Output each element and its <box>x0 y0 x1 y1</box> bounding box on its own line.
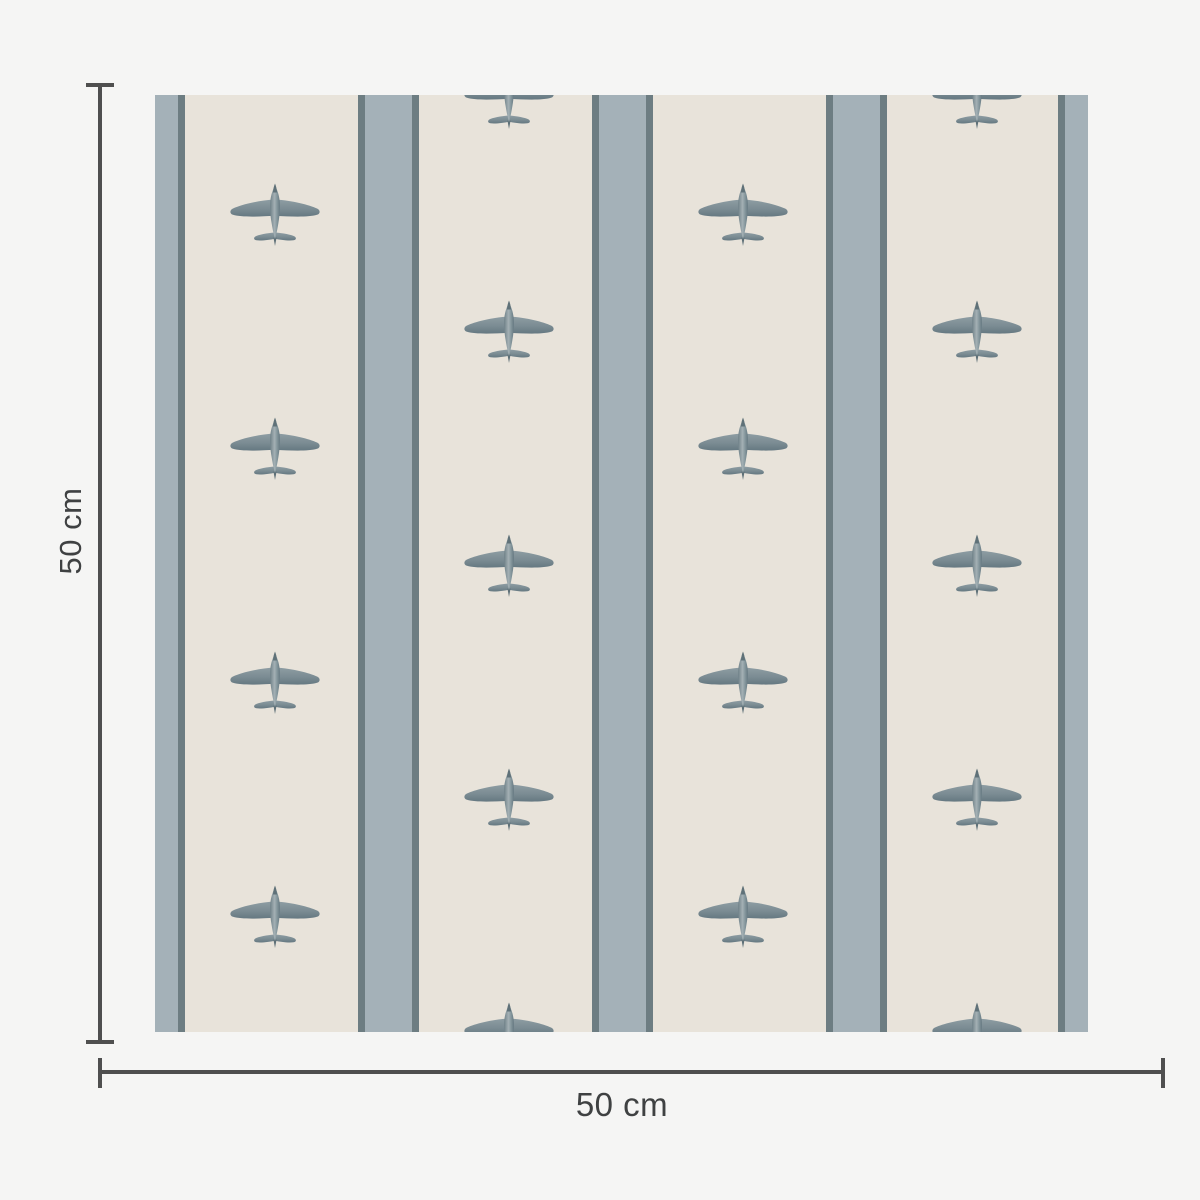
airplane-motif-icon <box>461 1002 557 1032</box>
airplane-motif-icon <box>227 417 323 481</box>
airplane-motif-icon <box>227 183 323 247</box>
airplane-motif-icon <box>227 651 323 715</box>
stripe-light <box>599 95 646 1032</box>
stripe-dark <box>178 95 185 1032</box>
airplane-motif-icon <box>461 534 557 598</box>
airplane-motif-icon <box>695 651 791 715</box>
stripe-dark <box>358 95 365 1032</box>
airplane-motif-icon <box>695 417 791 481</box>
stripe-dark <box>646 95 653 1032</box>
height-dimension-tick-bottom <box>86 1040 114 1044</box>
width-dimension-line <box>100 1070 1163 1074</box>
height-dimension-line <box>98 85 102 1042</box>
airplane-motif-icon <box>695 885 791 949</box>
airplane-motif-icon <box>929 1002 1025 1032</box>
airplane-motif-icon <box>461 300 557 364</box>
airplane-motif-icon <box>227 885 323 949</box>
pattern-swatch <box>155 95 1088 1032</box>
height-dimension-tick-top <box>86 83 114 87</box>
width-dimension-tick-left <box>98 1058 102 1088</box>
airplane-motif-icon <box>929 95 1025 130</box>
airplane-motif-icon <box>929 768 1025 832</box>
stripe-light <box>1065 95 1088 1032</box>
airplane-motif-icon <box>461 768 557 832</box>
stripe-dark <box>1058 95 1065 1032</box>
airplane-motif-icon <box>461 95 557 130</box>
stripe-light <box>365 95 412 1032</box>
height-dimension-label: 50 cm <box>53 488 89 575</box>
stripe-light <box>833 95 880 1032</box>
airplane-motif-icon <box>929 534 1025 598</box>
stripe-dark <box>412 95 419 1032</box>
width-dimension-label: 50 cm <box>576 1086 668 1124</box>
width-dimension-tick-right <box>1161 1058 1165 1088</box>
stripe-dark <box>826 95 833 1032</box>
airplane-motif-icon <box>695 183 791 247</box>
product-dimension-figure: 50 cm 50 cm <box>0 0 1200 1200</box>
stripe-light <box>155 95 178 1032</box>
stripe-dark <box>880 95 887 1032</box>
stripe-dark <box>592 95 599 1032</box>
airplane-motif-icon <box>929 300 1025 364</box>
